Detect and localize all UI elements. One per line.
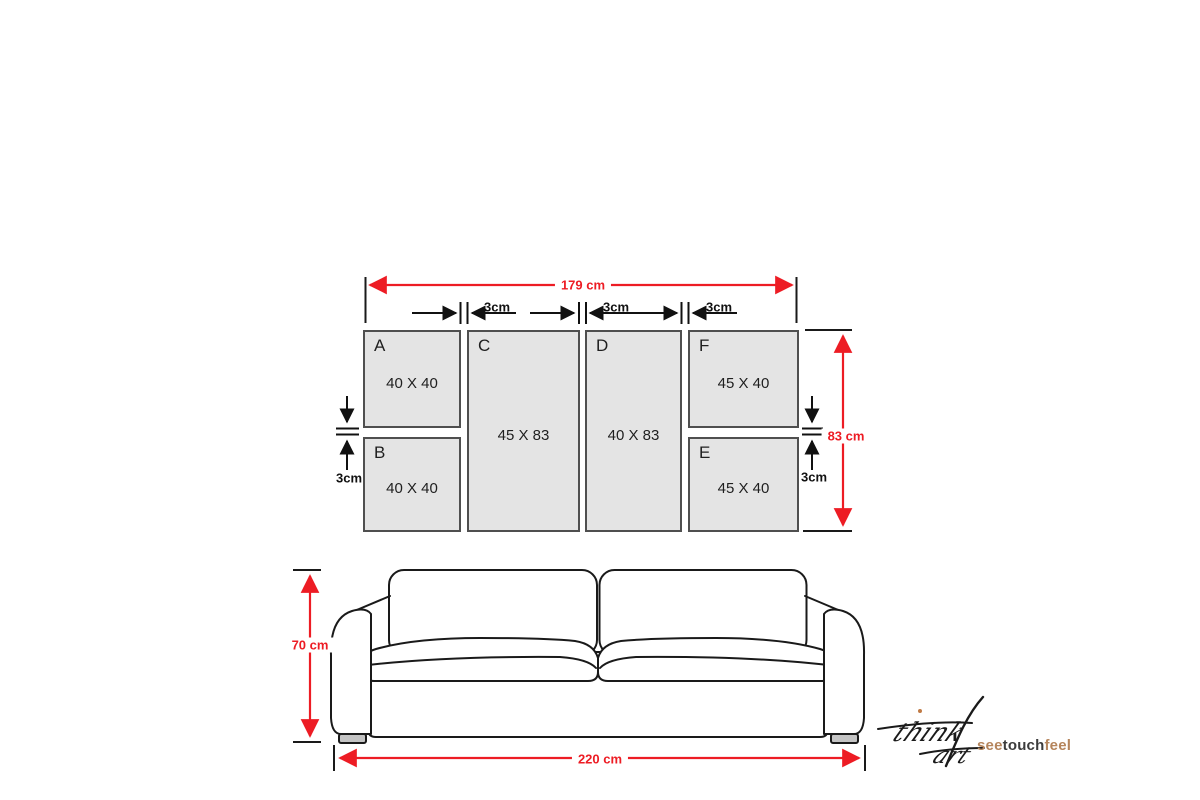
panel-B-size: 40 X 40 xyxy=(386,472,438,497)
gap-label-left: 3cm xyxy=(336,471,362,486)
panel-D-size: 40 X 83 xyxy=(608,419,660,444)
logo-i-dot xyxy=(918,709,922,713)
tagline-touch: touch xyxy=(1003,737,1045,754)
thinkart-tagline: seetouchfeel xyxy=(977,737,1071,754)
panel-B-letter: B xyxy=(374,443,385,463)
gap-label-top-2: 3cm xyxy=(603,300,629,315)
panel-C-letter: C xyxy=(478,336,490,356)
panel-F-letter: F xyxy=(699,336,709,356)
panel-A: A 40 X 40 xyxy=(363,330,461,428)
dimension-label-sofa-width: 220 cm xyxy=(572,752,628,767)
sofa-seat-cushion-left xyxy=(360,638,598,681)
gap-indicator-left xyxy=(336,396,359,470)
panel-E: E 45 X 40 xyxy=(688,437,799,532)
panel-A-size: 40 X 40 xyxy=(386,367,438,392)
gap-label-right: 3cm xyxy=(801,470,827,485)
diagram-canvas: think art A 40 X 40 B 40 X 40 C 45 X 83 … xyxy=(0,0,1200,800)
sofa-seat-cushion-right xyxy=(598,638,836,681)
panel-E-size: 45 X 40 xyxy=(718,472,770,497)
sofa-illustration xyxy=(331,570,864,743)
panel-B: B 40 X 40 xyxy=(363,437,461,532)
sofa-foot-right xyxy=(831,734,858,743)
panel-C: C 45 X 83 xyxy=(467,330,580,532)
sofa-armrest-right xyxy=(824,610,864,734)
dimension-sofa-height-lines xyxy=(293,570,321,742)
panel-F: F 45 X 40 xyxy=(688,330,799,428)
dimension-label-total-height: 83 cm xyxy=(822,429,871,444)
tagline-feel: feel xyxy=(1044,737,1071,754)
panel-C-size: 45 X 83 xyxy=(498,419,550,444)
tagline-see: see xyxy=(977,737,1003,754)
thinkart-logo-script: think art xyxy=(878,697,984,769)
panel-E-letter: E xyxy=(699,443,710,463)
panel-A-letter: A xyxy=(374,336,385,356)
sofa-armrest-left xyxy=(331,610,371,734)
dimension-label-sofa-height: 70 cm xyxy=(286,638,335,653)
gap-label-top-1: 3cm xyxy=(484,300,510,315)
panel-D-letter: D xyxy=(596,336,608,356)
sofa-foot-left xyxy=(339,734,366,743)
panel-F-size: 45 X 40 xyxy=(718,367,770,392)
gap-indicator-right xyxy=(802,396,823,470)
dimension-label-total-width: 179 cm xyxy=(555,278,611,293)
gap-label-top-3: 3cm xyxy=(706,300,732,315)
panel-D: D 40 X 83 xyxy=(585,330,682,532)
